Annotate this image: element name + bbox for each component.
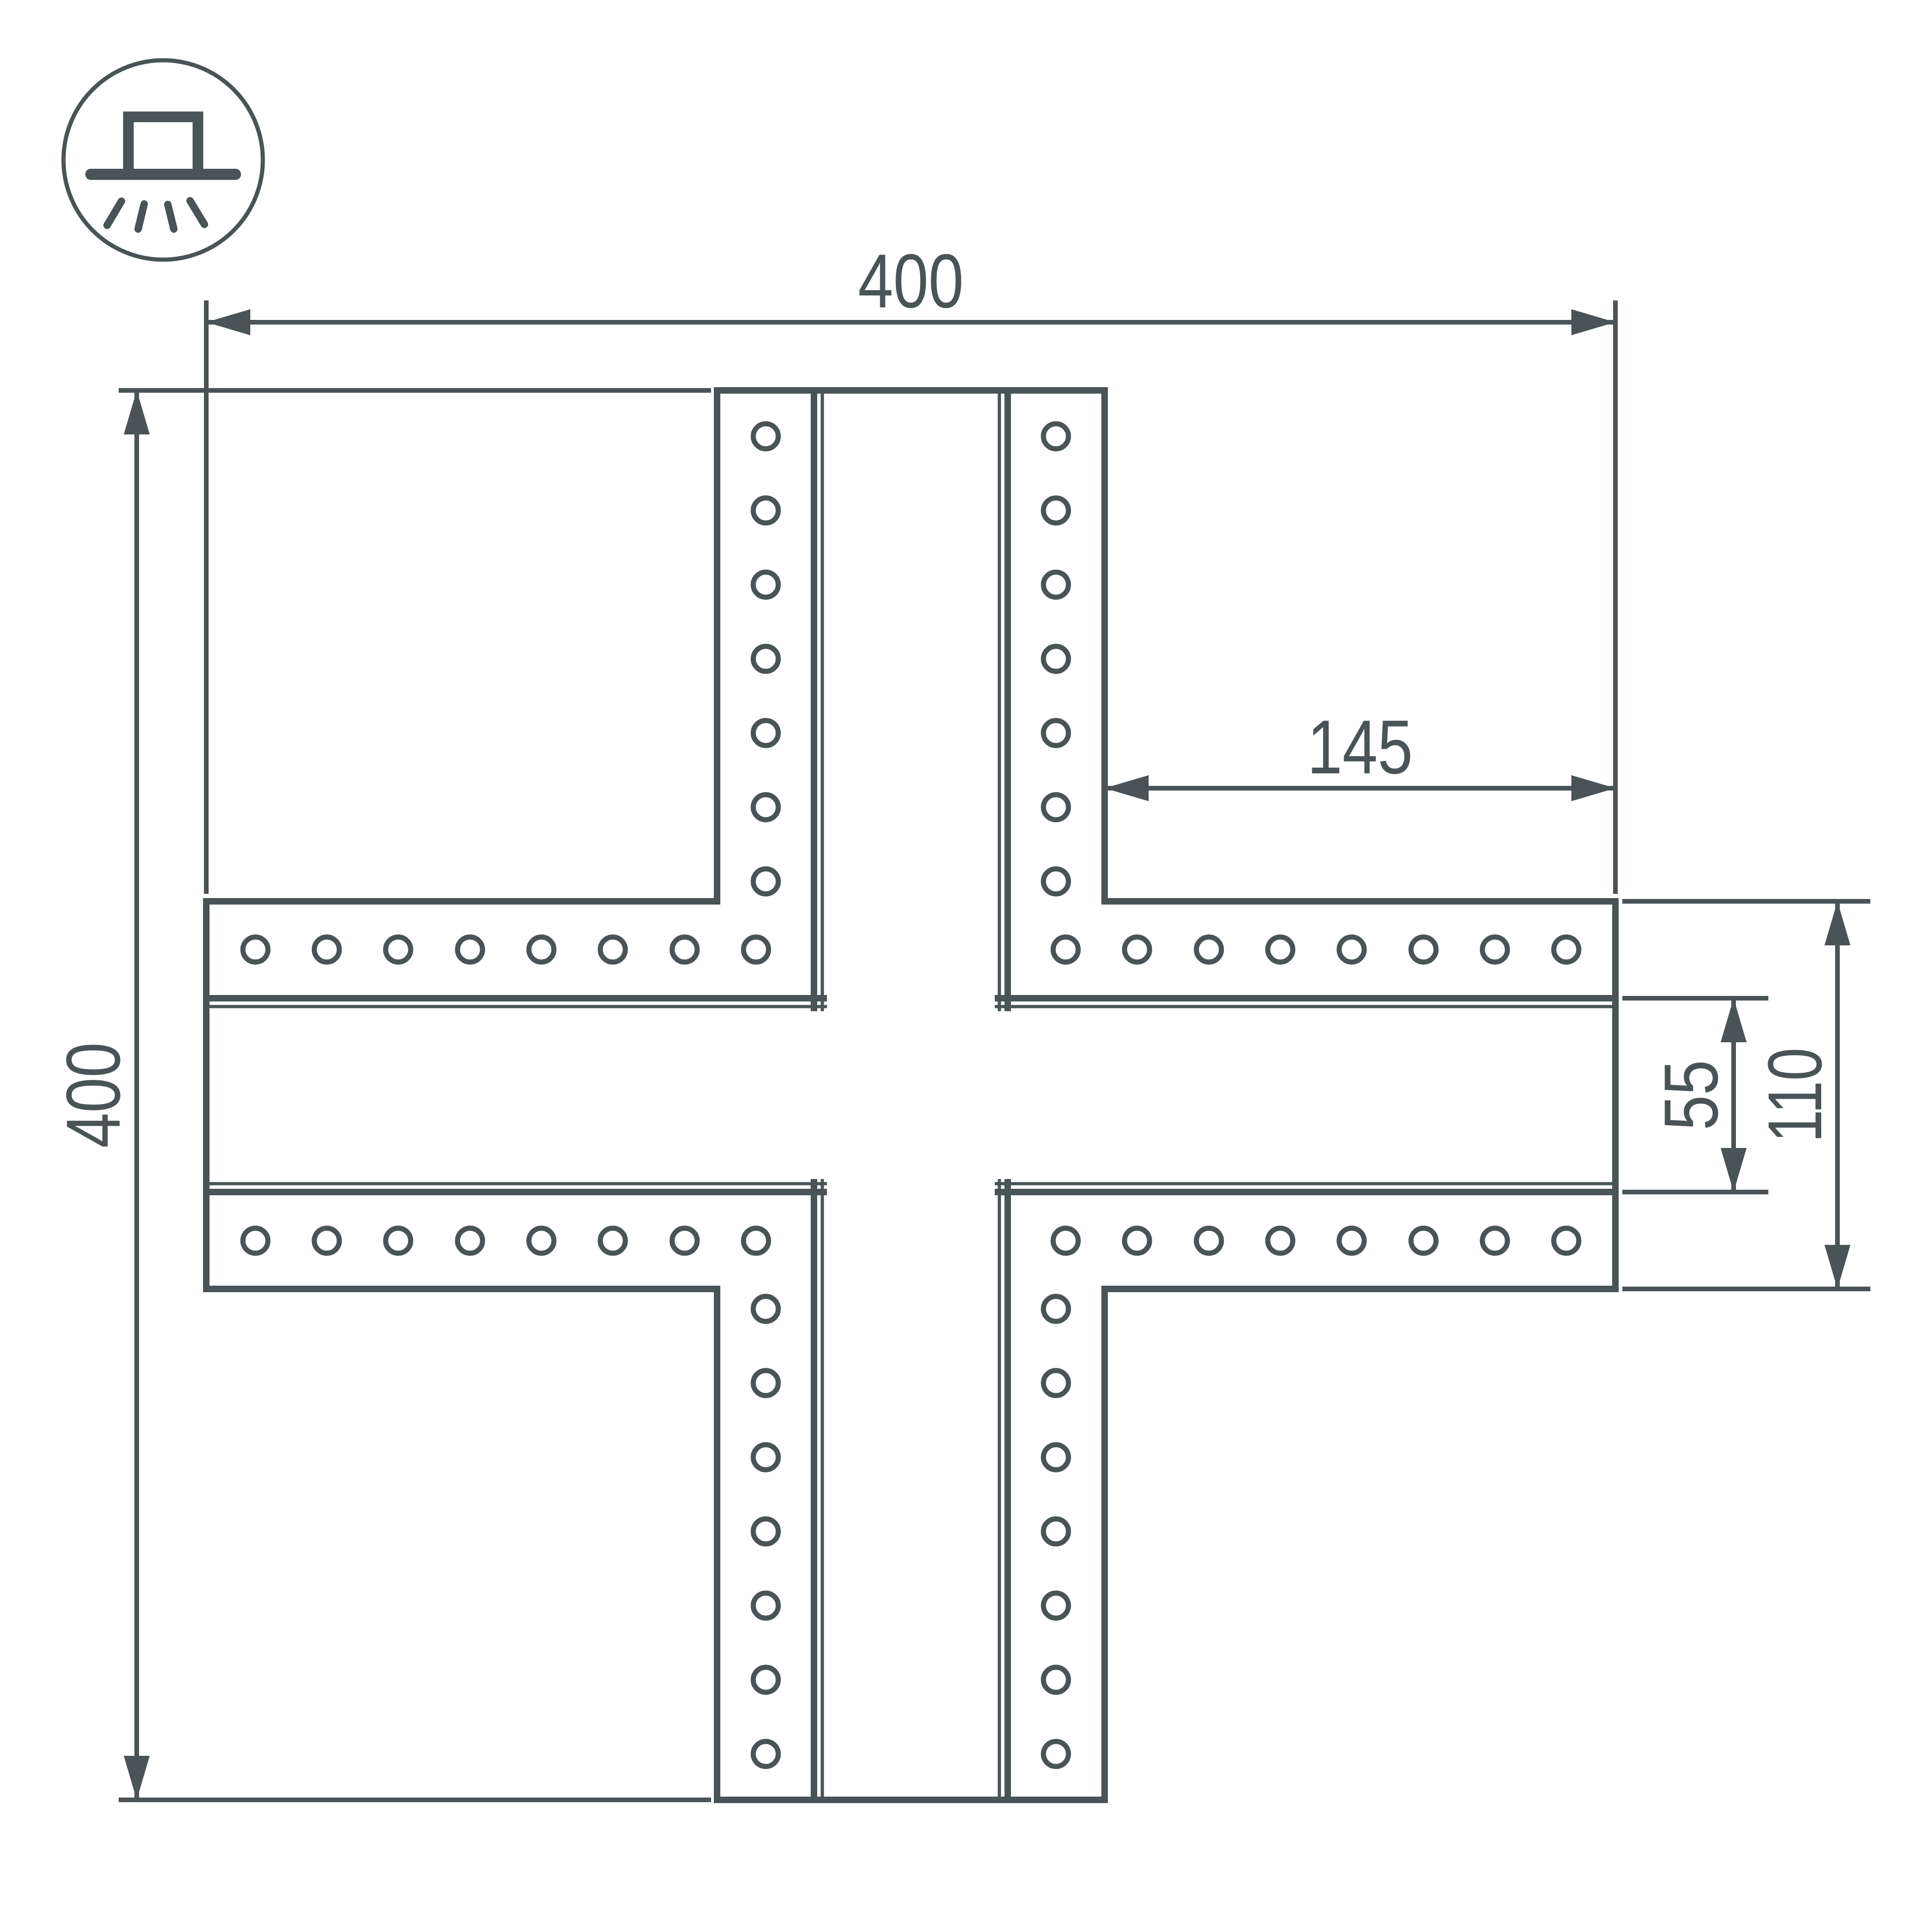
rivet-hole [1196,937,1221,962]
dimension-label-arm-length: 145 [1307,704,1413,790]
rivet-hole [1554,937,1579,962]
dimension-label-total-width: 400 [858,238,964,324]
rivet-hole [1043,1296,1068,1321]
dimension-total-height: 400 [51,390,711,1800]
channel-fold-lines [206,390,1615,1800]
rivet-hole [753,869,778,894]
rivet-hole [672,937,697,962]
rivet-hole [314,937,339,962]
rivet-hole [1268,1228,1293,1253]
rivet-hole [744,1228,769,1253]
rivet-hole [458,937,483,962]
rivet-hole [1125,1228,1150,1253]
rivet-hole [386,937,411,962]
rivet-hole [753,1667,778,1692]
rivet-hole [243,937,268,962]
rivet-hole [753,1296,778,1321]
arrowhead-right [1571,309,1615,335]
rivet-hole [1043,869,1068,894]
dimension-label-arm-width: 110 [1752,1048,1837,1143]
arrowhead-right [1571,775,1615,801]
rivet-hole [1482,937,1507,962]
rivet-hole [1043,1445,1068,1470]
rivet-hole [1268,937,1293,962]
rivet-hole [753,646,778,671]
arrowhead-left [206,309,250,335]
technical-drawing-page: 400 400 145 55 110 [0,0,1932,1932]
rivet-hole [1125,937,1150,962]
rivet-hole [529,937,554,962]
rivet-hole [753,1371,778,1396]
rivet-hole [753,424,778,449]
rivet-hole [1053,1228,1078,1253]
rivet-hole [1196,1228,1221,1253]
rivet-hole [753,1445,778,1470]
rivet-hole [1339,1228,1364,1253]
rivet-hole [1043,795,1068,820]
rivet-hole [753,1741,778,1766]
rivet-holes [243,424,1579,1766]
rivet-hole [753,795,778,820]
cross-outline [206,390,1615,1800]
rivet-hole [1043,1593,1068,1618]
rivet-hole [753,572,778,597]
arrowhead-top [1824,901,1850,945]
dimension-total-width: 400 [206,238,1615,894]
rivet-hole [1043,572,1068,597]
dimension-label-channel-width: 55 [1648,1060,1734,1130]
rivet-hole [672,1228,697,1253]
rivet-hole [753,1593,778,1618]
icon-circle [64,60,263,260]
rivet-hole [1043,498,1068,523]
rivet-hole [753,1519,778,1544]
arrowhead-left [1105,775,1149,801]
cross-connector-body [206,390,1615,1800]
rivet-hole [1482,1228,1507,1253]
dimension-channel-width: 55 [1622,998,1768,1192]
surface-mounted-luminaire-icon [64,60,263,260]
dimension-label-total-height: 400 [51,1042,136,1148]
rivet-hole [386,1228,411,1253]
rivet-hole [1411,937,1436,962]
rivet-hole [1053,937,1078,962]
icon-light-rays [107,201,204,229]
dimension-arm-length: 145 [1105,704,1615,801]
arrowhead-top [1721,998,1747,1042]
rivet-hole [314,1228,339,1253]
arrowhead-bottom [124,1756,150,1800]
rivet-hole [1043,646,1068,671]
channel-edges [206,390,1615,1800]
rivet-hole [744,937,769,962]
rivet-hole [753,721,778,746]
rivet-hole [753,498,778,523]
icon-fixture-box [128,117,198,175]
rivet-hole [1043,1371,1068,1396]
rivet-hole [458,1228,483,1253]
rivet-hole [529,1228,554,1253]
rivet-hole [1043,1519,1068,1544]
rivet-hole [1043,424,1068,449]
technical-drawing-canvas: 400 400 145 55 110 [0,0,1932,1932]
rivet-hole [1043,721,1068,746]
arrowhead-bottom [1721,1148,1747,1192]
rivet-hole [243,1228,268,1253]
arrowhead-top [124,390,150,434]
rivet-hole [1339,937,1364,962]
rivet-hole [1043,1667,1068,1692]
rivet-hole [1043,1741,1068,1766]
rivet-hole [1554,1228,1579,1253]
rivet-hole [600,937,625,962]
rivet-hole [1411,1228,1436,1253]
arrowhead-bottom [1824,1245,1850,1289]
rivet-hole [600,1228,625,1253]
